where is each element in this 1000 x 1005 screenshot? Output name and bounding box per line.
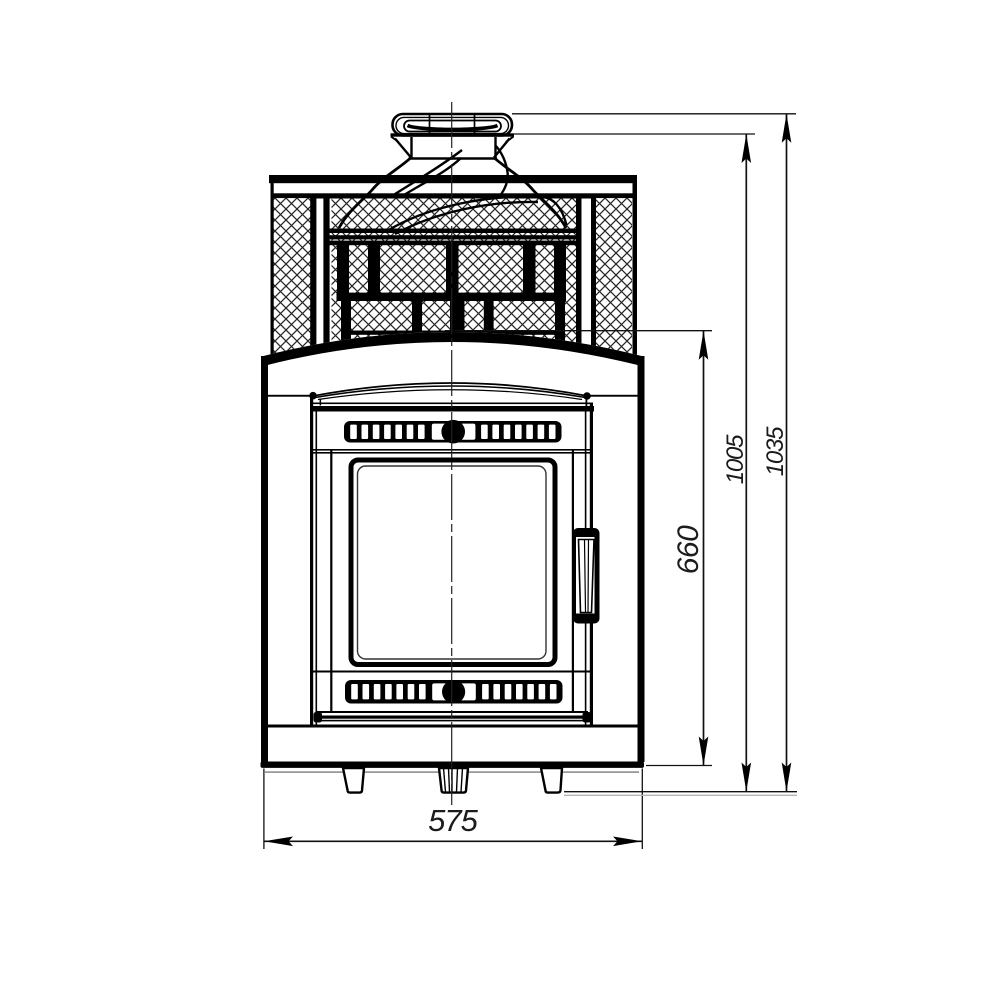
svg-text:575: 575 <box>428 803 478 838</box>
svg-text:1035: 1035 <box>762 426 789 476</box>
svg-text:1005: 1005 <box>722 434 749 484</box>
svg-text:660: 660 <box>672 525 705 574</box>
